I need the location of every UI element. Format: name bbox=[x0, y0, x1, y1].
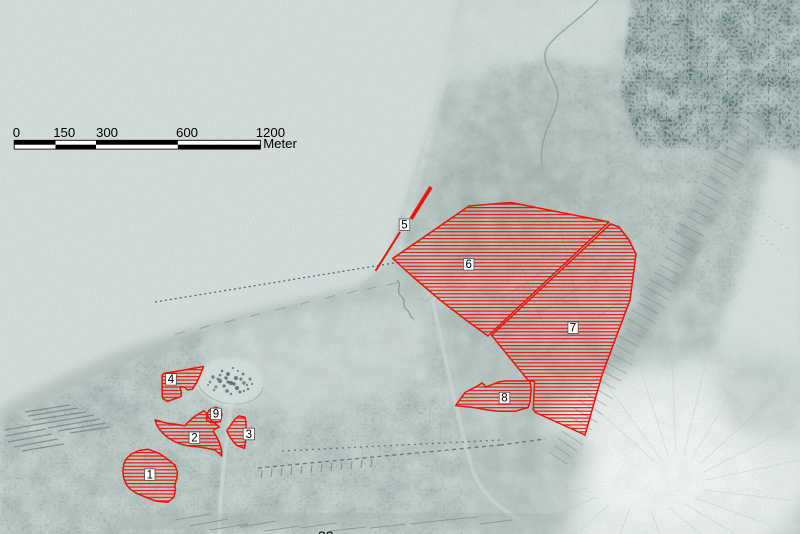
svg-text:5: 5 bbox=[401, 219, 407, 231]
svg-text:0: 0 bbox=[13, 125, 20, 140]
svg-text:6: 6 bbox=[465, 259, 471, 271]
svg-text:8: 8 bbox=[501, 393, 507, 405]
svg-text:600: 600 bbox=[176, 125, 198, 140]
svg-text:9: 9 bbox=[213, 409, 219, 421]
svg-text:33: 33 bbox=[318, 528, 334, 534]
svg-text:300: 300 bbox=[96, 125, 118, 140]
svg-text:1: 1 bbox=[147, 469, 153, 481]
svg-text:4: 4 bbox=[168, 374, 175, 386]
svg-text:3: 3 bbox=[246, 429, 252, 441]
svg-text:2: 2 bbox=[191, 432, 197, 444]
svg-text:150: 150 bbox=[53, 125, 75, 140]
svg-text:Meter: Meter bbox=[263, 136, 297, 151]
svg-text:7: 7 bbox=[570, 322, 576, 334]
